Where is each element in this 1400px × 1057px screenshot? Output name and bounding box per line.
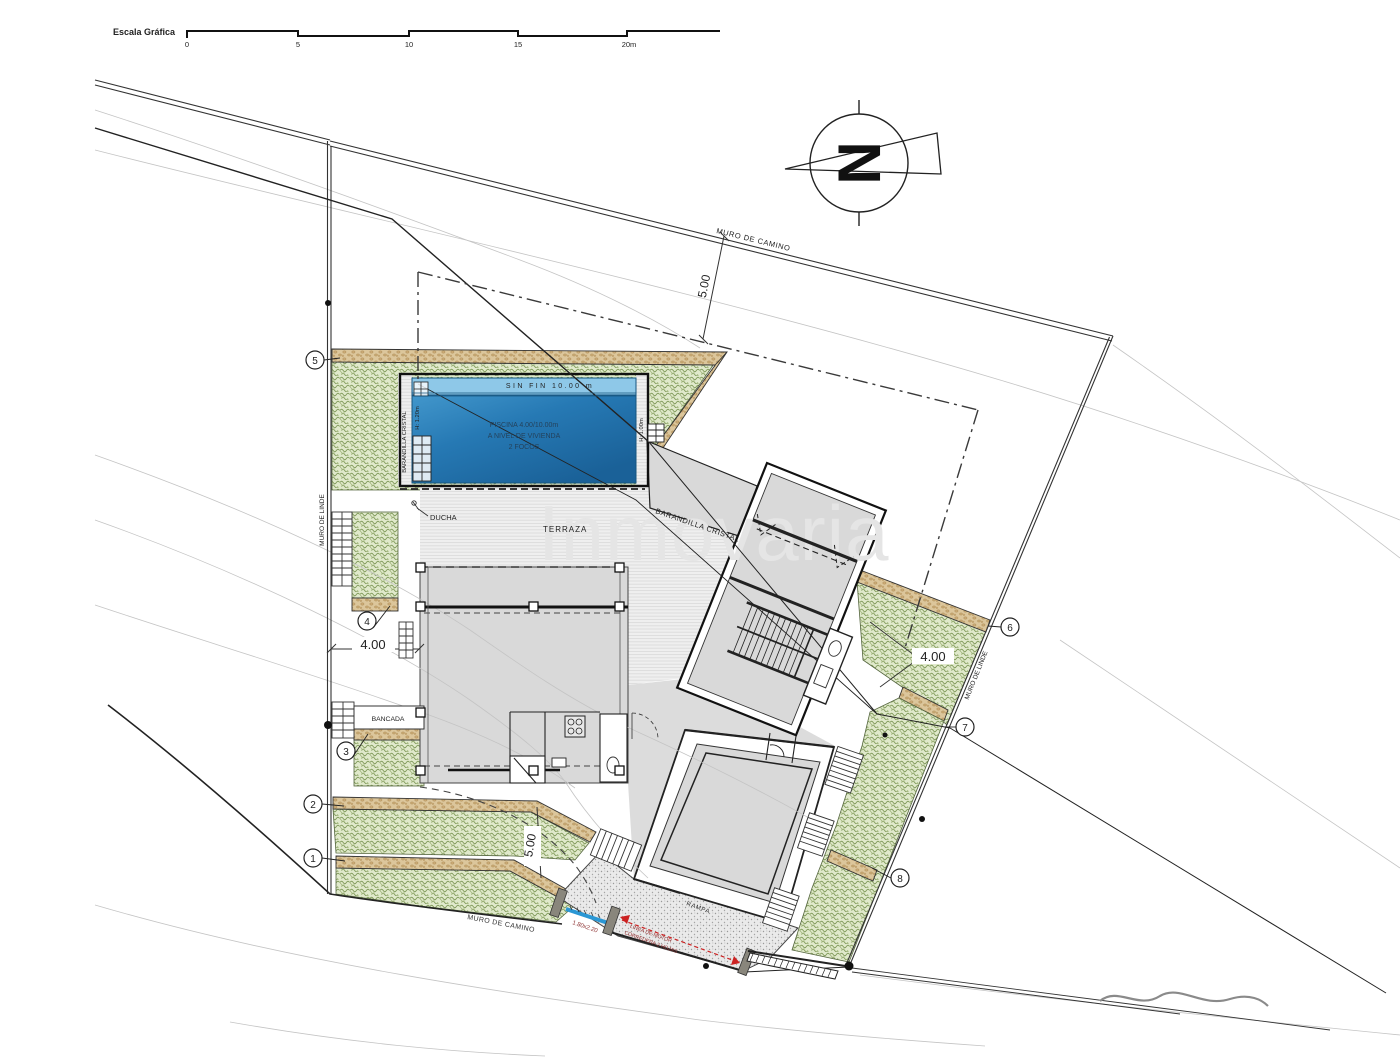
- svg-text:0: 0: [185, 40, 189, 49]
- svg-text:6: 6: [1007, 623, 1013, 634]
- svg-text:SIN FIN 10.00 m: SIN FIN 10.00 m: [506, 383, 594, 390]
- svg-text:5: 5: [312, 356, 318, 367]
- svg-text:3: 3: [343, 747, 349, 758]
- svg-text:A NIVEL DE VIVIENDA: A NIVEL DE VIVIENDA: [488, 433, 561, 440]
- svg-text:MURO DE LINDE: MURO DE LINDE: [319, 494, 326, 546]
- svg-text:2: 2: [310, 800, 316, 811]
- svg-text:8: 8: [897, 874, 903, 885]
- svg-text:H: 1.20m: H: 1.20m: [415, 406, 421, 430]
- svg-text:20m: 20m: [622, 40, 637, 49]
- svg-text:DUCHA: DUCHA: [430, 513, 457, 522]
- svg-text:PISCINA 4.00/10.00m: PISCINA 4.00/10.00m: [490, 422, 559, 429]
- svg-text:TERRAZA: TERRAZA: [543, 525, 587, 534]
- svg-text:BARANDILLA CRISTAL: BARANDILLA CRISTAL: [402, 411, 408, 473]
- svg-text:2 FOCOS: 2 FOCOS: [509, 444, 540, 451]
- svg-text:10: 10: [405, 40, 413, 49]
- svg-text:4.00: 4.00: [920, 649, 945, 664]
- svg-text:5: 5: [296, 40, 300, 49]
- svg-text:1: 1: [310, 854, 316, 865]
- svg-text:Escala Gráfica: Escala Gráfica: [113, 27, 176, 37]
- svg-text:N: N: [826, 141, 893, 184]
- svg-text:4: 4: [364, 617, 370, 628]
- svg-text:BANCADA: BANCADA: [372, 716, 405, 723]
- svg-text:15: 15: [514, 40, 522, 49]
- svg-text:H: 1.00m: H: 1.00m: [639, 418, 645, 442]
- svg-text:7: 7: [962, 723, 968, 734]
- svg-text:4.00: 4.00: [360, 637, 385, 652]
